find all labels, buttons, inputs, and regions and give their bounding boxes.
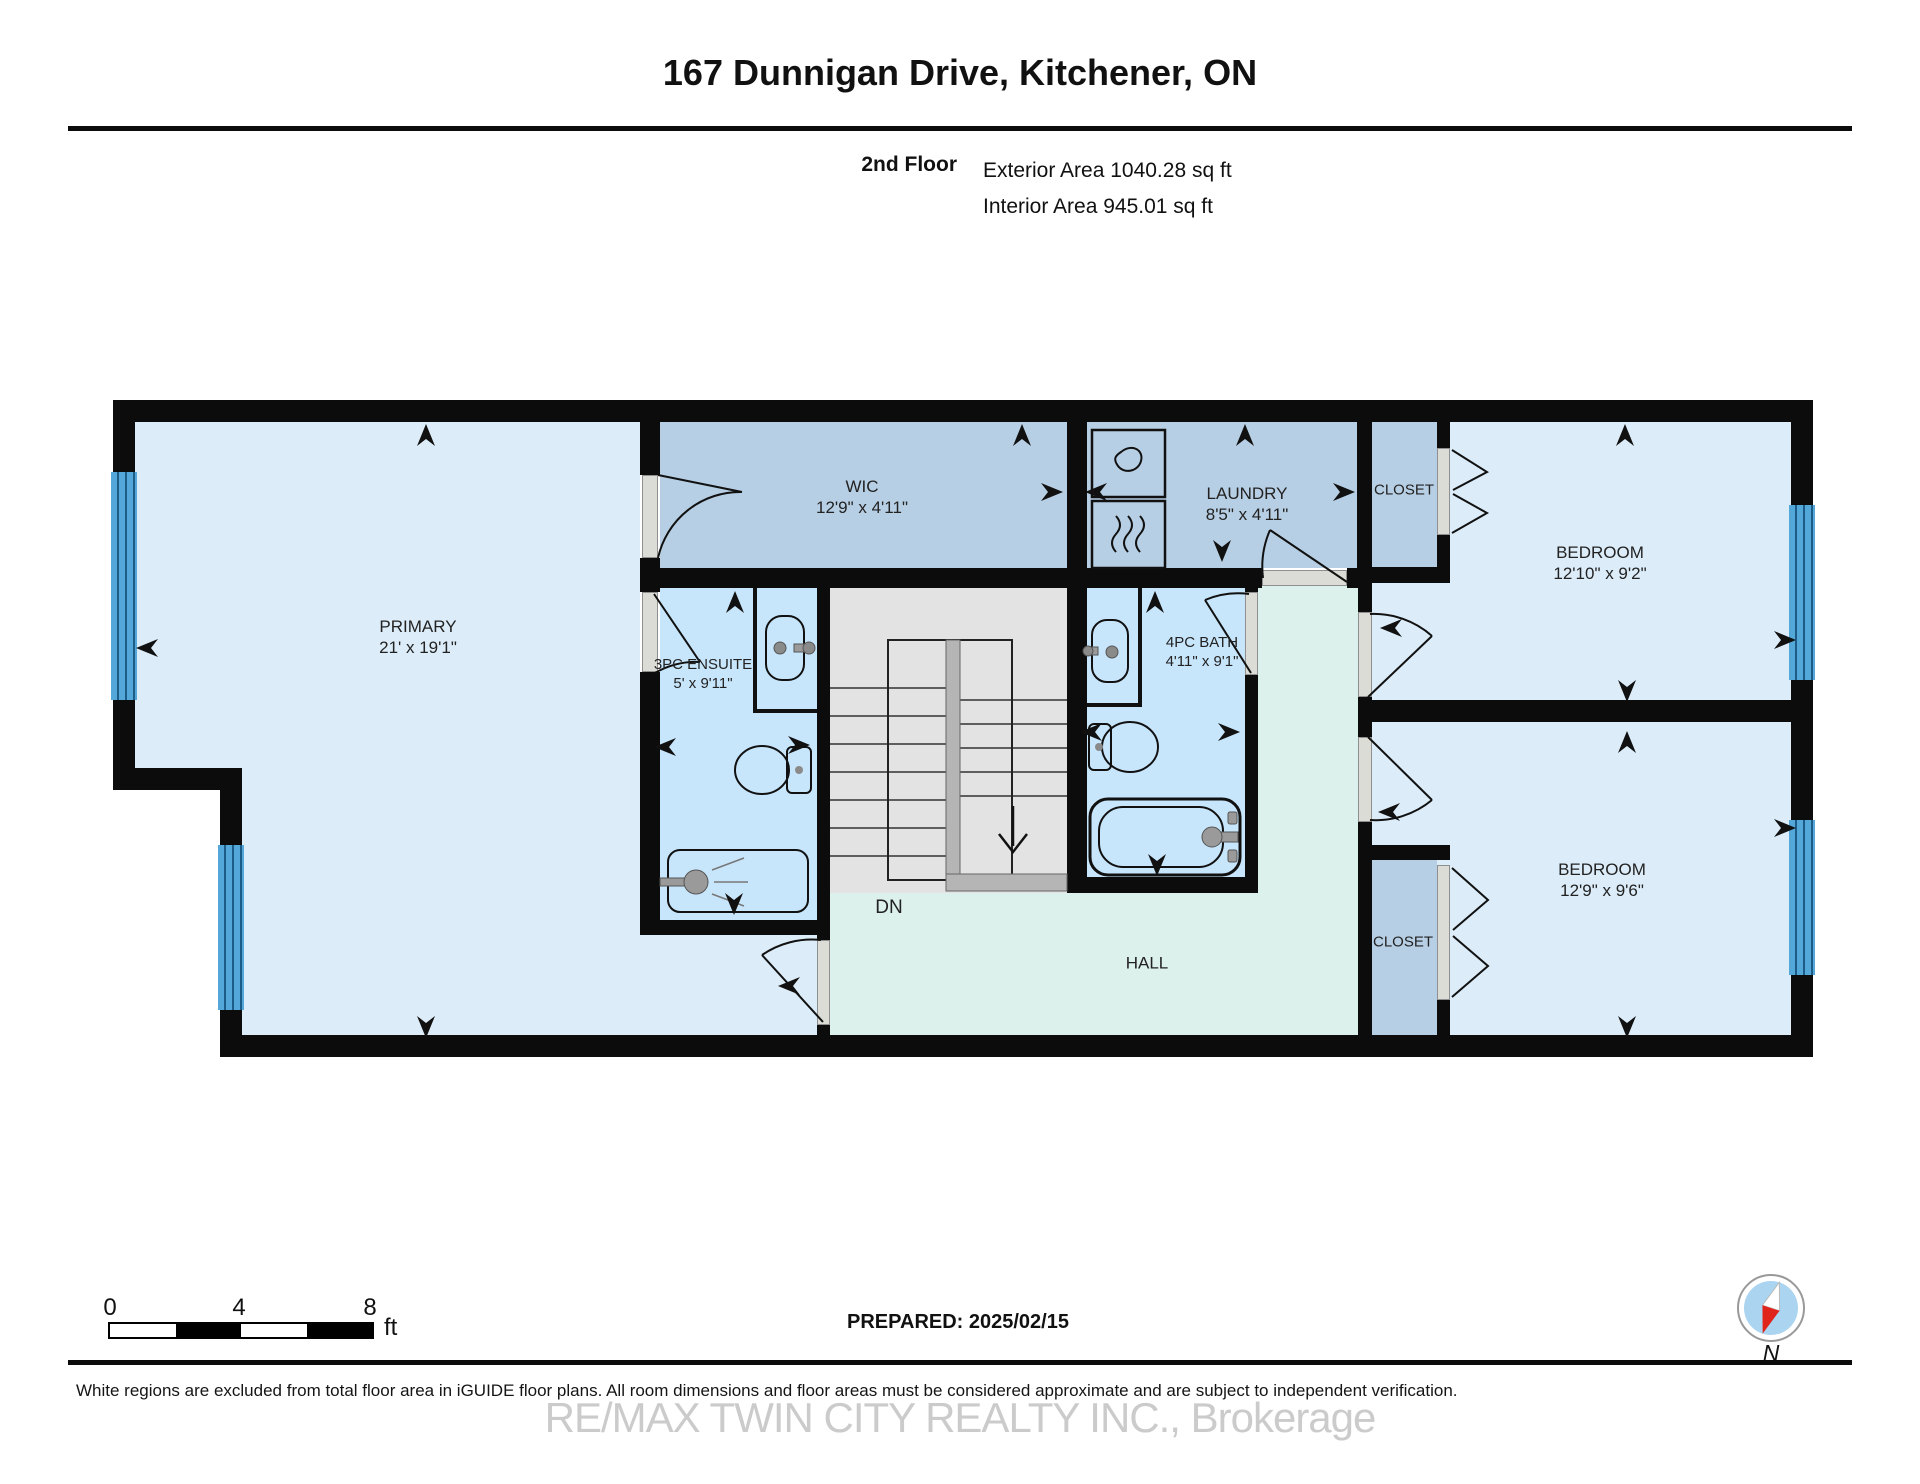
disclaimer-text: White regions are excluded from total fl… xyxy=(76,1381,1458,1401)
brokerage-watermark: RE/MAX TWIN CITY REALTY INC., Brokerage xyxy=(545,1394,1376,1442)
sink-icon xyxy=(766,616,815,680)
laundry-door xyxy=(1262,530,1347,582)
stairs-down-arrow xyxy=(999,806,1027,852)
staircase xyxy=(830,640,1067,891)
room-label-hall: HALL xyxy=(1126,953,1169,974)
bathtub-icon xyxy=(1090,799,1240,875)
door-swings xyxy=(654,450,1488,1022)
scale-bar xyxy=(108,1322,374,1339)
room-label-closet-bottom: CLOSET xyxy=(1373,933,1433,952)
room-label-bedroom-top: BEDROOM 12'10" x 9'2" xyxy=(1553,542,1646,584)
toilet-icon xyxy=(735,746,811,794)
room-label-laundry: LAUNDRY 8'5" x 4'11" xyxy=(1206,483,1289,525)
stairs-dn-label: DN xyxy=(875,897,902,919)
closet-top-bifold-door xyxy=(1452,450,1487,533)
compass-icon xyxy=(1738,1275,1804,1341)
footer-divider xyxy=(68,1360,1852,1365)
closet-bottom-bifold-door xyxy=(1452,868,1488,997)
scale-tick-4: 4 xyxy=(232,1294,245,1322)
toilet-icon xyxy=(1089,722,1158,772)
bedroom-bottom-door xyxy=(1368,737,1432,820)
bedroom-top-door xyxy=(1368,614,1432,697)
wic-door xyxy=(658,475,742,558)
prepared-date: PREPARED: 2025/02/15 xyxy=(847,1311,1069,1334)
room-label-bedroom-bottom: BEDROOM 12'9" x 9'6" xyxy=(1558,859,1646,901)
room-label-primary: PRIMARY 21' x 19'1" xyxy=(379,616,457,658)
plan-linework xyxy=(0,0,1920,1484)
room-label-wic: WIC 12'9" x 4'11" xyxy=(816,476,908,518)
scale-tick-0: 0 xyxy=(103,1294,116,1322)
camera-arrows xyxy=(136,424,1796,1038)
scale-tick-8: 8 xyxy=(363,1294,376,1322)
room-label-ensuite: 3PC ENSUITE 5' x 9'11" xyxy=(654,655,752,693)
floor-plan-page: 167 Dunnigan Drive, Kitchener, ON 2nd Fl… xyxy=(0,0,1920,1484)
sink-icon xyxy=(1083,620,1128,682)
scale-unit: ft xyxy=(384,1314,397,1342)
bath-fixtures xyxy=(1083,588,1240,875)
room-label-bath: 4PC BATH 4'11" x 9'1" xyxy=(1166,633,1239,671)
room-label-closet-top: CLOSET xyxy=(1374,481,1434,500)
